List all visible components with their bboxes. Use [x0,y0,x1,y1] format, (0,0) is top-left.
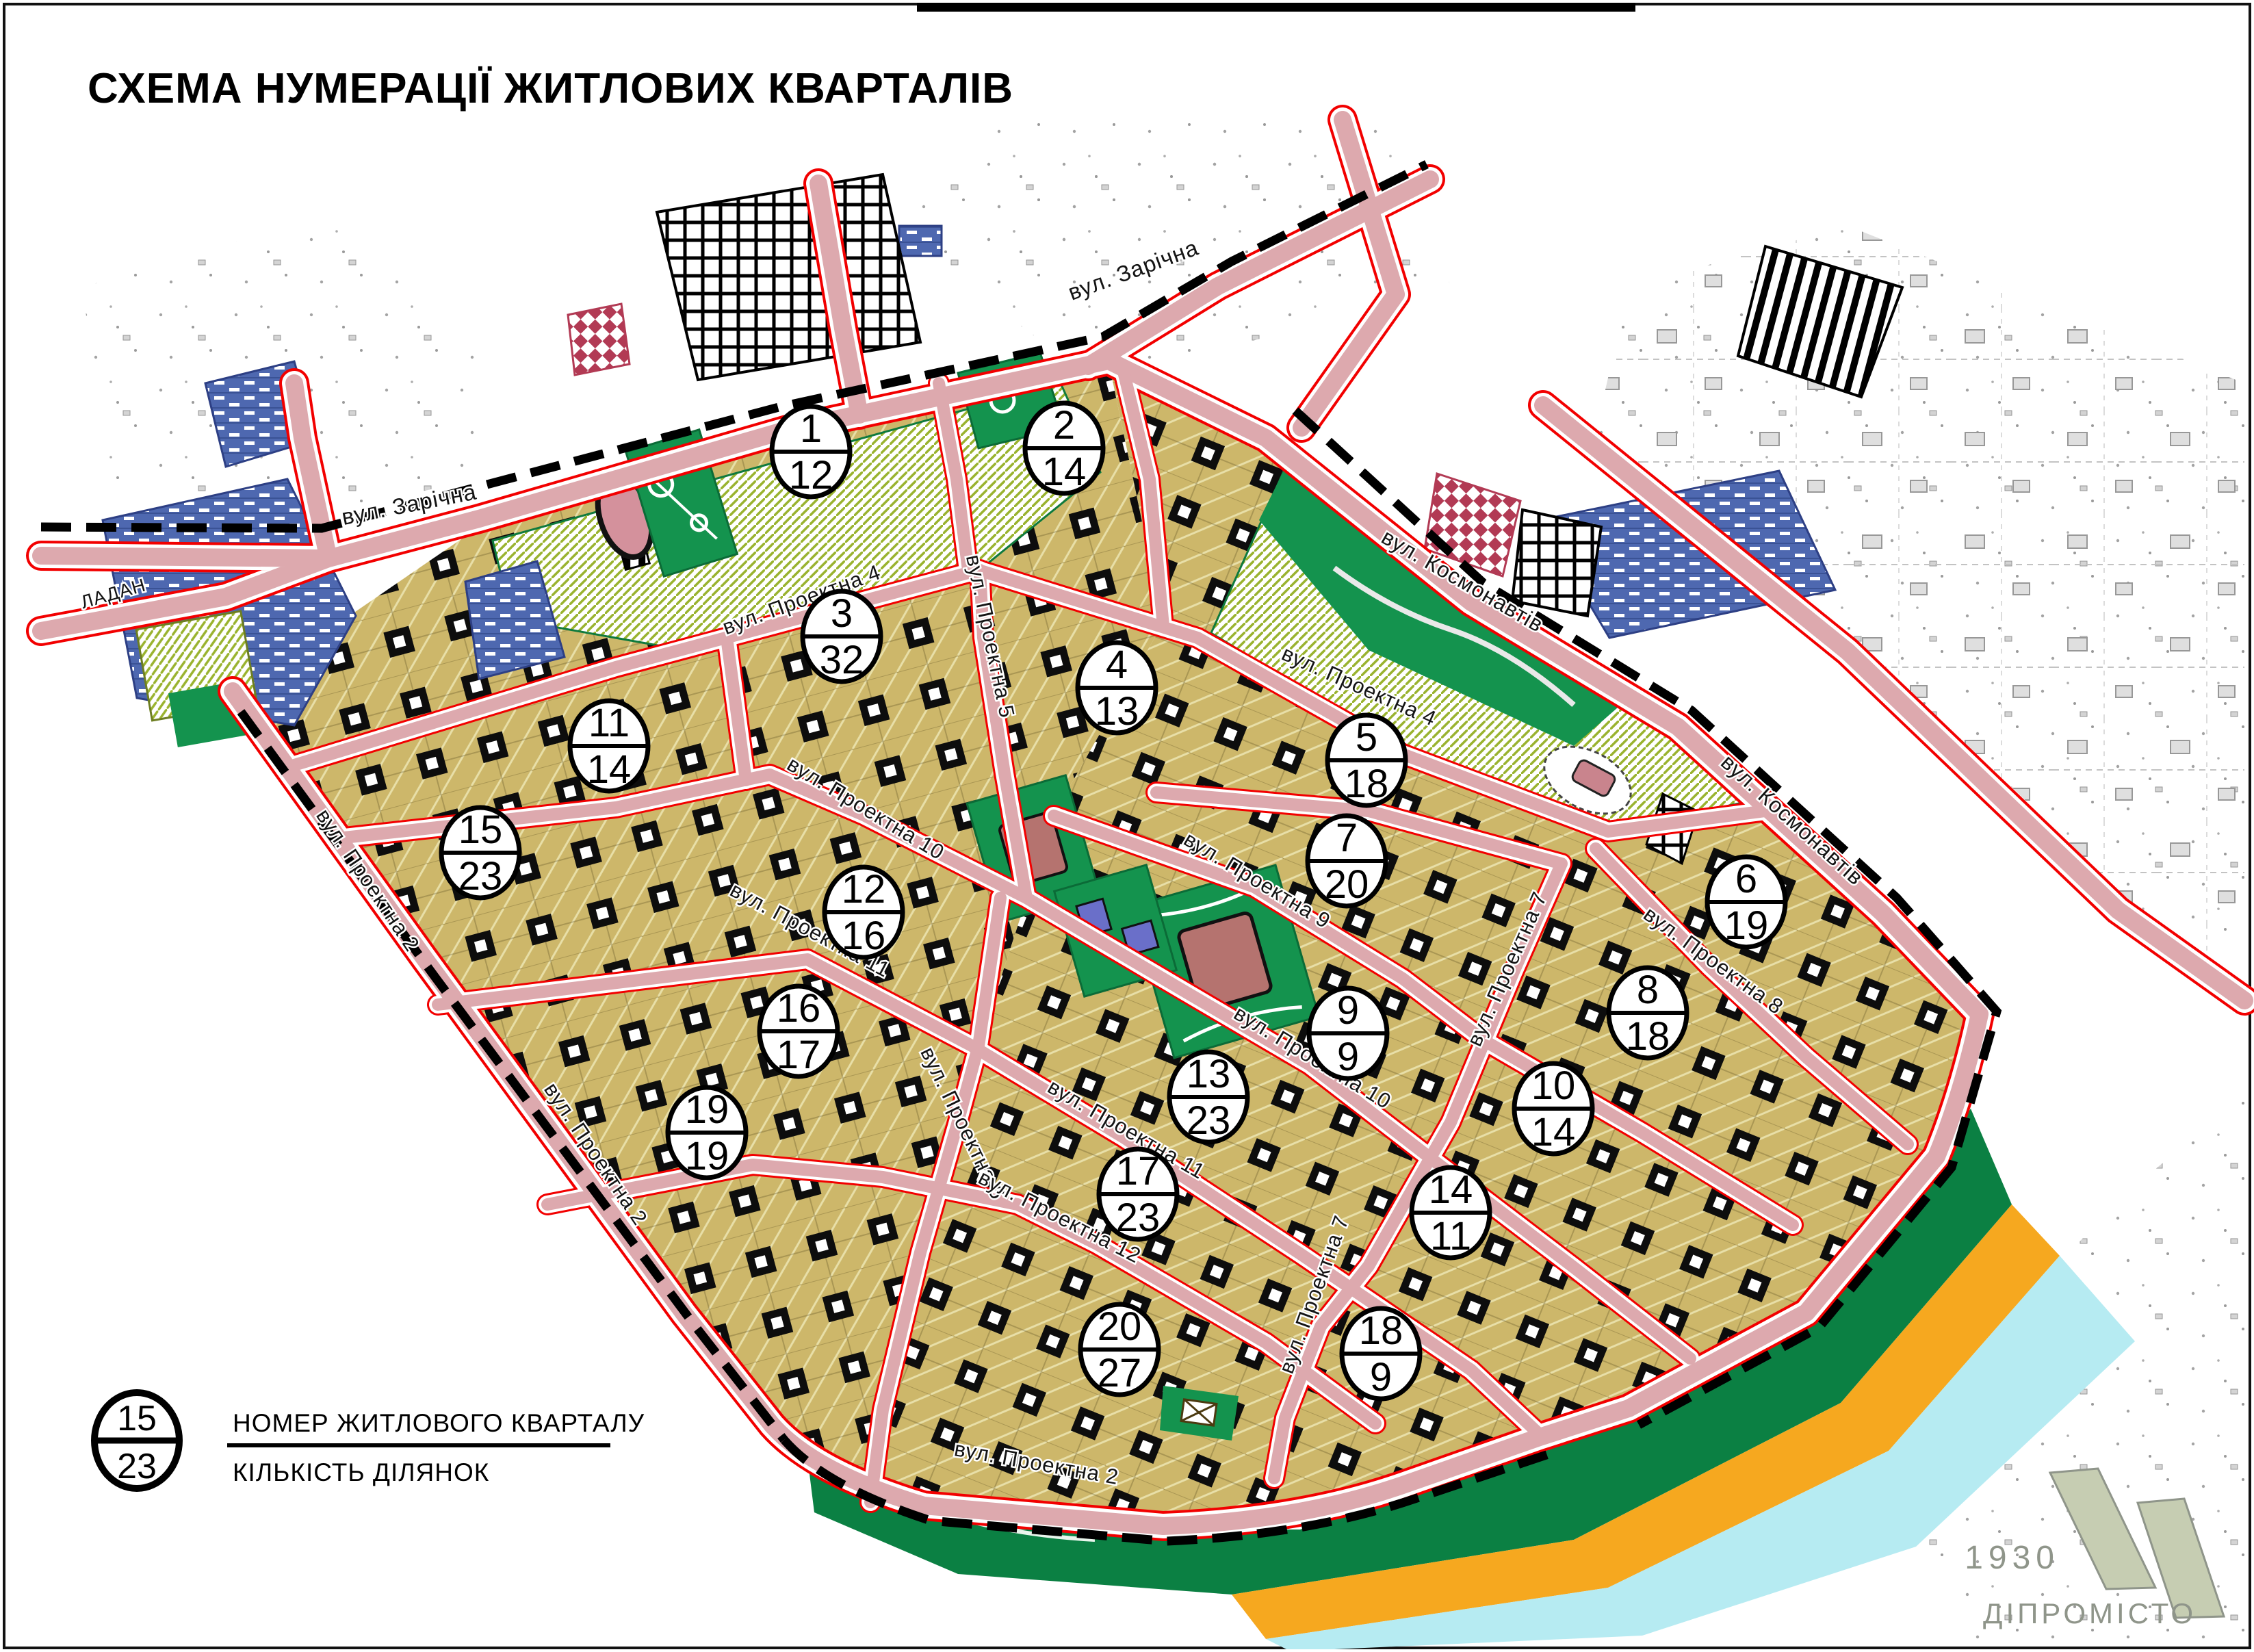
block-badge-5: 518 [1327,715,1405,806]
block-number: 13 [1187,1052,1231,1096]
legend-block-number: 15 [117,1399,157,1438]
block-number: 12 [842,867,886,912]
plan-sheet: вул. Зарічнавул. ЗарічнаЛАДАНвул. Космон… [0,0,2254,1652]
logo-year: 1930 [1965,1540,2060,1576]
block-plot-count: 14 [1042,450,1087,494]
block-number: 6 [1735,857,1757,901]
block-number: 17 [1116,1149,1161,1193]
block-plot-count: 23 [1116,1196,1161,1240]
block-badge-6: 619 [1707,857,1785,948]
block-plot-count: 11 [1430,1214,1471,1259]
block-badge-3: 332 [803,591,881,682]
legend-line2: КІЛЬКІСТЬ ДІЛЯНОК [233,1458,489,1486]
block-number: 14 [1429,1167,1473,1212]
block-badge-2: 214 [1025,403,1103,494]
title-block: СХЕМА НУМЕРАЦІЇ ЖИТЛОВИХ КВАРТАЛІВ [88,65,1013,112]
block-badge-4: 413 [1078,643,1156,734]
legend-line1: НОМЕР ЖИТЛОВОГО КВАРТАЛУ [233,1409,645,1437]
block-plot-count: 16 [842,914,886,958]
page-title: СХЕМА НУМЕРАЦІЇ ЖИТЛОВИХ КВАРТАЛІВ [88,65,1013,112]
block-number: 18 [1359,1308,1403,1353]
block-plot-count: 32 [820,638,864,682]
site-plan-map: вул. Зарічнавул. ЗарічнаЛАДАНвул. Космон… [0,0,2254,1652]
block-plot-count: 14 [1531,1110,1576,1154]
block-badge-13: 1323 [1169,1052,1247,1143]
block-badge-10: 1014 [1514,1063,1592,1154]
block-plot-count: 18 [1626,1014,1670,1059]
top-edge-road-band [917,3,1635,12]
block-badge-8: 818 [1609,968,1687,1059]
block-number: 8 [1637,968,1659,1012]
block-badge-7: 720 [1308,816,1386,907]
block-number: 5 [1356,715,1377,760]
block-plot-count: 14 [587,747,632,792]
block-badge-16: 1617 [760,986,838,1077]
block-number: 20 [1098,1304,1142,1349]
block-badge-18: 189 [1342,1308,1420,1399]
block-number: 9 [1337,988,1359,1033]
block-badge-14: 1411 [1412,1167,1490,1259]
block-number: 15 [458,808,503,852]
block-badge-1: 112 [772,406,850,498]
block-plot-count: 20 [1325,862,1369,907]
block-number: 11 [588,701,630,745]
block-plot-count: 19 [1724,903,1769,948]
block-badge-17: 1723 [1099,1149,1177,1240]
legend-plot-count: 23 [117,1447,157,1486]
block-plot-count: 12 [789,453,833,498]
block-plot-count: 23 [1187,1098,1231,1143]
block-number: 16 [777,986,821,1031]
block-badge-20: 2027 [1080,1304,1158,1395]
block-number: 19 [685,1087,729,1132]
block-badge-12: 1216 [825,867,903,958]
block-number: 4 [1106,643,1128,687]
legend: 15 23 НОМЕР ЖИТЛОВОГО КВАРТАЛУ КІЛЬКІСТЬ… [94,1393,645,1488]
logo-name: ДІПРОМІСТО [1983,1597,2197,1629]
block-plot-count: 17 [777,1033,821,1077]
block-plot-count: 9 [1370,1355,1392,1399]
block-plot-count: 27 [1098,1351,1142,1395]
block-number: 2 [1053,403,1075,448]
block-number: 10 [1531,1063,1576,1108]
block-plot-count: 18 [1345,762,1389,806]
block-plot-count: 9 [1337,1035,1359,1079]
block-number: 7 [1336,816,1358,860]
block-plot-count: 13 [1095,689,1139,734]
block-badge-9: 99 [1309,988,1387,1079]
block-number: 3 [831,591,853,636]
block-plot-count: 23 [458,854,503,899]
block-badge-19: 1919 [668,1087,746,1178]
block-plot-count: 19 [685,1134,729,1178]
block-number: 1 [800,406,822,451]
block-badge-11: 1114 [570,701,648,792]
block-badge-15: 1523 [441,808,519,899]
